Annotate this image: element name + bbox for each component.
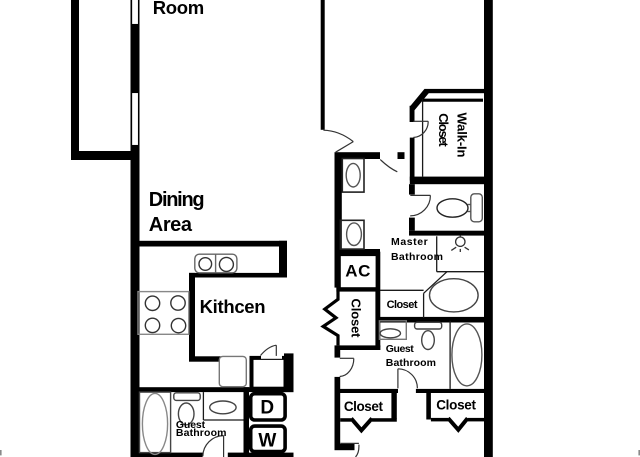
svg-text:Dining: Dining (149, 189, 205, 211)
svg-text:Closet: Closet (436, 113, 451, 147)
svg-text:Closet: Closet (436, 398, 476, 413)
svg-text:Bathroom: Bathroom (386, 357, 436, 369)
svg-text:Closet: Closet (344, 399, 384, 414)
svg-text:Area: Area (149, 214, 193, 236)
svg-text:Kithcen: Kithcen (200, 296, 266, 317)
svg-text:Bathroom: Bathroom (176, 427, 227, 439)
svg-text:Closet: Closet (349, 299, 364, 339)
svg-text:Room: Room (153, 0, 205, 18)
svg-text:Master: Master (391, 236, 428, 248)
svg-text:Bathroom: Bathroom (391, 251, 443, 263)
svg-text:Closet: Closet (387, 299, 418, 311)
svg-text:Guest: Guest (386, 343, 414, 355)
svg-text:D: D (260, 398, 274, 419)
svg-text:Walk-In: Walk-In (455, 113, 470, 158)
svg-text:AC: AC (345, 261, 370, 280)
svg-text:W: W (258, 430, 276, 451)
